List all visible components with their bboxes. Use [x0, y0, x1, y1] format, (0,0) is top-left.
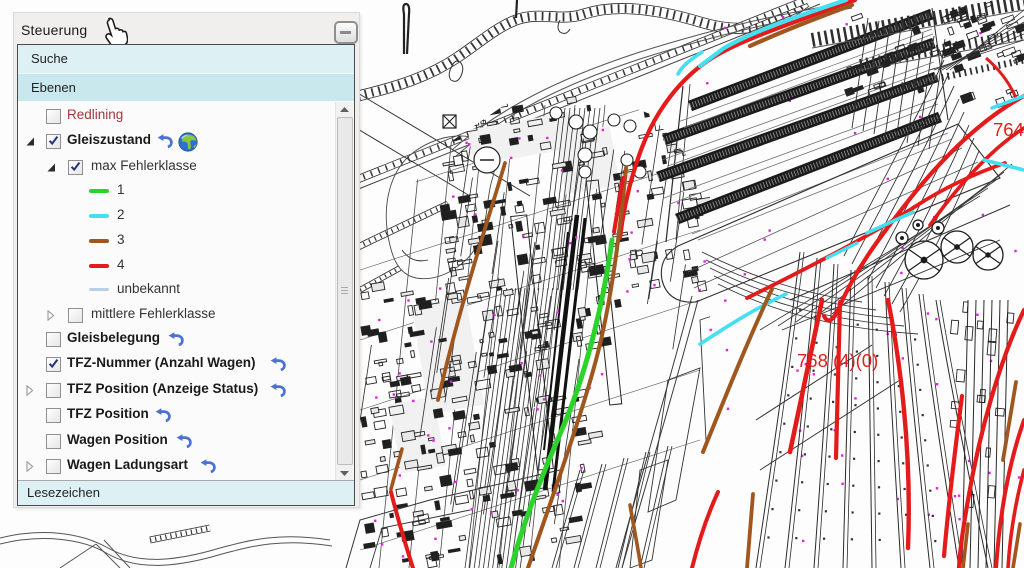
svg-text:768 (4)(0): 768 (4)(0) [797, 350, 878, 371]
svg-text:764: 764 [993, 119, 1024, 140]
